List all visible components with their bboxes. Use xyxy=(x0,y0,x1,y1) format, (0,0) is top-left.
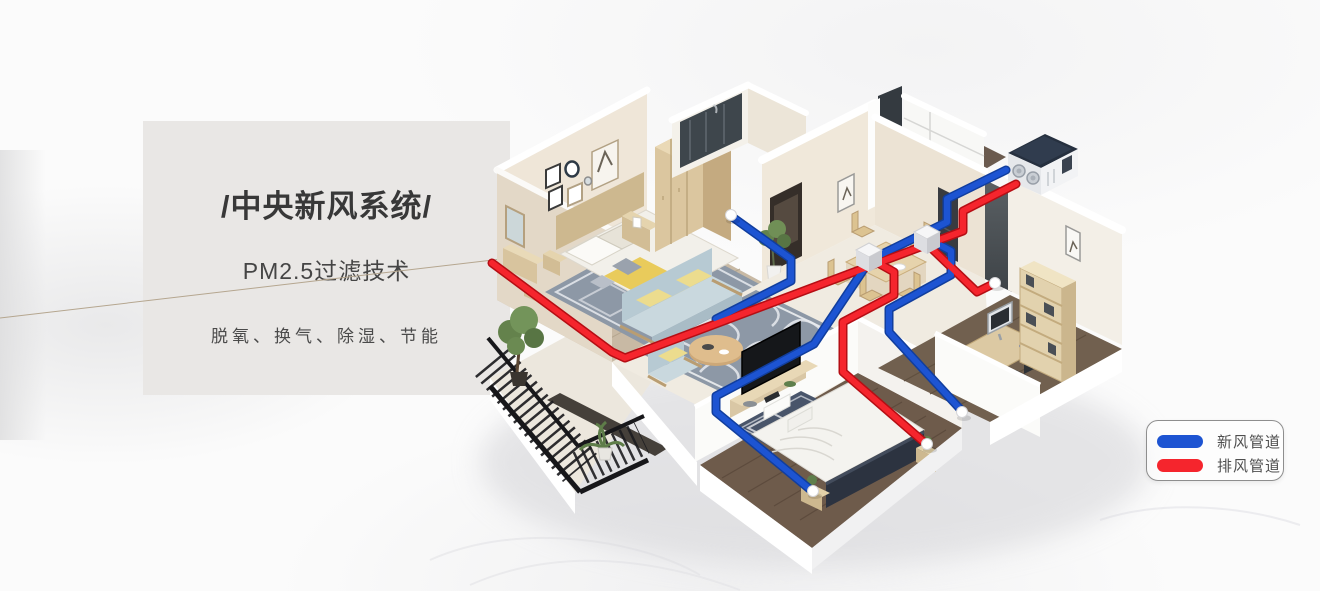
nightstand xyxy=(543,211,659,276)
ground-shadow xyxy=(480,357,1150,567)
fresh-air-label: 新风管道 xyxy=(1217,431,1281,452)
background-swirl-lines xyxy=(430,507,1300,590)
pipe-legend: 新风管道 排风管道 xyxy=(1146,420,1284,481)
banner: { "panel": { "title": "/中央新风系统/", "subti… xyxy=(0,0,1320,591)
second-bed xyxy=(752,382,924,508)
living-dining xyxy=(612,211,990,465)
fresh-air-pipes xyxy=(716,170,1006,491)
sofa xyxy=(620,248,742,348)
tv-area xyxy=(695,318,858,462)
text-panel: /中央新风系统/ PM2.5过滤技术 脱氧、换气、除湿、节能 xyxy=(143,121,510,395)
wardrobe xyxy=(655,122,731,252)
bedroom2-rug xyxy=(733,391,864,459)
page-title: /中央新风系统/ xyxy=(143,181,510,226)
monitor xyxy=(988,302,1012,334)
pipe-underlays xyxy=(492,170,1016,491)
armchair xyxy=(648,334,702,386)
exhaust-pipes xyxy=(492,184,1016,443)
junction-box xyxy=(856,243,882,272)
balcony xyxy=(490,318,668,514)
balcony-railing xyxy=(488,338,648,492)
kitchen xyxy=(868,86,1006,210)
exhaust-label: 排风管道 xyxy=(1217,455,1281,476)
slab-edge xyxy=(612,362,697,486)
desk-chair xyxy=(1004,349,1034,393)
balcony-plants xyxy=(498,306,624,460)
vent xyxy=(990,278,1001,289)
tv-screen xyxy=(742,322,800,394)
vent xyxy=(808,486,819,497)
background-shade xyxy=(0,150,46,440)
legend-row-fresh-air: 新风管道 xyxy=(1157,429,1283,453)
ceiling-vents xyxy=(726,210,1005,500)
coffee-table xyxy=(689,335,743,366)
wall-art xyxy=(838,174,854,212)
bedroom-rug xyxy=(545,230,778,356)
desk xyxy=(962,302,1046,386)
wall-pictures xyxy=(546,140,618,210)
dining-set xyxy=(828,211,930,302)
bookshelf xyxy=(1020,261,1076,382)
hrv-unit xyxy=(1008,134,1078,195)
vent xyxy=(922,439,933,450)
fresh-air-color-swatch xyxy=(1157,435,1203,448)
bathroom xyxy=(672,85,806,178)
stool xyxy=(524,286,540,303)
hall-plant xyxy=(758,220,791,285)
hallway xyxy=(758,103,875,285)
exhaust-color-swatch xyxy=(1157,459,1203,472)
master-bed xyxy=(556,172,738,307)
panel-subtitle: PM2.5过滤技术 xyxy=(143,252,510,286)
right-wall xyxy=(985,175,1122,345)
duct-junction-boxes xyxy=(856,225,940,272)
nightstand xyxy=(801,436,944,511)
vent xyxy=(726,210,737,221)
legend-row-exhaust: 排风管道 xyxy=(1157,453,1283,477)
study xyxy=(878,261,1122,445)
panel-features: 脱氧、换气、除湿、节能 xyxy=(143,322,510,347)
vent xyxy=(957,407,968,418)
entry-wall xyxy=(875,117,985,279)
living-rug xyxy=(638,290,858,402)
junction-box xyxy=(914,225,940,254)
second-bedroom xyxy=(700,318,962,574)
